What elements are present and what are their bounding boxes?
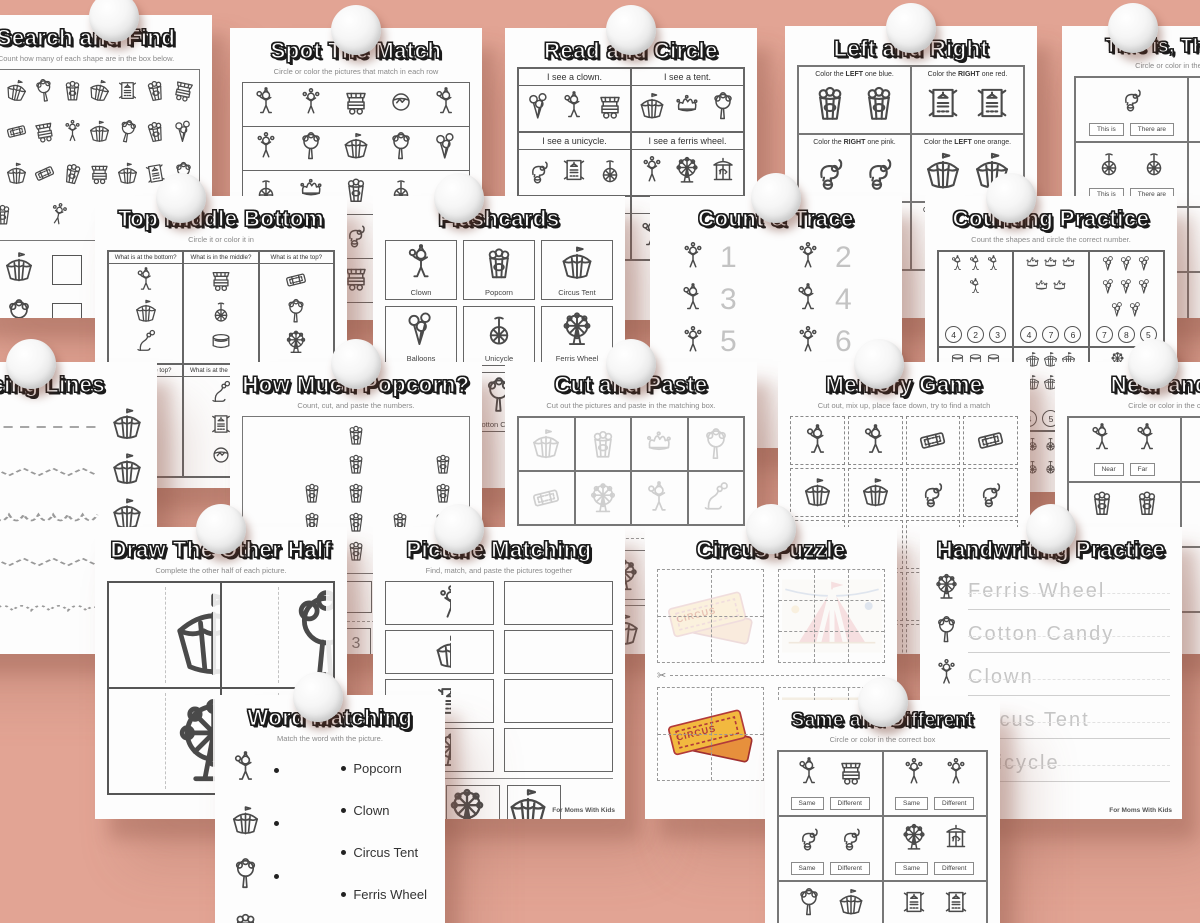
instruction: Color the LEFT one orange. [916, 139, 1019, 146]
icon [402, 335, 440, 352]
poster-icon [922, 82, 964, 124]
trace-line [0, 465, 101, 479]
page-title: Top Middle Bottom [107, 206, 335, 232]
clown-icon [229, 751, 262, 784]
popcorn-icon [141, 117, 170, 146]
puzzle-target-tickets: CIRCUS [657, 569, 764, 663]
option-same: Same [791, 862, 824, 875]
clown-icon [678, 283, 708, 313]
icon [229, 804, 262, 842]
paste-grid [517, 416, 745, 526]
icon [1033, 278, 1050, 300]
icon [116, 587, 214, 683]
popcorn-icon [431, 481, 455, 505]
icon [32, 78, 57, 108]
ferris-wheel-icon [283, 329, 309, 355]
tent-icon [115, 161, 140, 186]
poster-icon [115, 78, 140, 103]
icon [429, 633, 451, 671]
icon [87, 78, 112, 108]
icon [0, 78, 1, 108]
trace-number: 4 [835, 283, 852, 317]
number-options: 423 [941, 326, 1010, 343]
balloons-icon [1118, 255, 1135, 272]
icon [809, 150, 851, 197]
icon [133, 267, 159, 298]
cotton-candy-icon [283, 298, 309, 324]
flashcard: Unicycle [463, 306, 535, 366]
pictures [1072, 423, 1177, 458]
popcorn-icon [431, 452, 455, 476]
push-pin [858, 677, 908, 727]
push-pin [1128, 339, 1178, 389]
clown-icon [251, 87, 281, 117]
balloons-icon [524, 91, 554, 121]
clown-icon [559, 91, 589, 121]
icon [708, 155, 738, 190]
cotton-candy-icon [2, 298, 36, 318]
page-title: Memory Game [790, 372, 1018, 398]
options: This is There are [1192, 253, 1200, 266]
options: This is There are [1192, 123, 1200, 136]
icon [251, 87, 281, 122]
option-same: Same [895, 797, 928, 810]
options: Near Far [1185, 528, 1200, 541]
popcorn-icon [344, 481, 368, 505]
carousel-icon [941, 822, 971, 852]
tent-icon [801, 476, 834, 509]
push-pin [986, 173, 1036, 223]
flashcard: Clown [385, 240, 457, 300]
puzzle-gridline [779, 631, 884, 632]
popcorn-icon [141, 76, 170, 105]
icon [133, 329, 159, 360]
podium-icon [208, 329, 234, 355]
juggler-icon [793, 325, 823, 355]
option-near: Near [1094, 463, 1124, 476]
icon [115, 161, 140, 191]
word-label: Clown [353, 803, 389, 818]
sentence-cell: I see a clown. [518, 68, 631, 132]
distance-cell: Near Far [1181, 612, 1200, 654]
faded-cell [688, 471, 745, 525]
tent-icon [836, 887, 866, 917]
instructions: Complete the other half of each picture. [107, 566, 335, 575]
answer-box [52, 303, 82, 319]
icon [524, 155, 554, 190]
number-option: 6 [1064, 326, 1081, 343]
cotton-candy-icon [229, 857, 262, 890]
clown-icon [1087, 423, 1117, 453]
ferris-wheel-icon [932, 572, 961, 601]
match-dot [341, 766, 346, 771]
option-same: Same [895, 862, 928, 875]
option-different: Different [830, 862, 870, 875]
pictures [1185, 423, 1200, 458]
cart-icon [595, 91, 625, 121]
icon [558, 335, 596, 352]
juggler-icon [429, 584, 451, 622]
word-label: Popcorn [353, 761, 401, 776]
cotton-candy-icon [932, 615, 961, 644]
icon [115, 119, 140, 149]
number-option: 4 [945, 326, 962, 343]
half-picture-box [385, 630, 494, 674]
icon [208, 267, 234, 298]
elephant-icon [1117, 83, 1147, 113]
question: What is at the bottom? [109, 252, 182, 264]
faded-cell [631, 471, 688, 525]
unicycle-icon [1139, 148, 1169, 178]
jester-hat-icon [642, 427, 676, 461]
number-option: 8 [1118, 326, 1135, 343]
push-pin [293, 672, 343, 722]
options: This is There are [1192, 188, 1200, 201]
popcorn-icon [344, 423, 368, 447]
counting-cell: 476 [1013, 251, 1088, 347]
icon [794, 887, 824, 922]
juggler-icon [941, 757, 971, 787]
options: Near Far [1072, 463, 1177, 476]
faded-cell [575, 417, 632, 471]
cart-icon [168, 75, 198, 105]
popcorn-icon [1087, 488, 1117, 518]
icon [341, 131, 371, 166]
icon [1100, 278, 1117, 300]
faded-cell [518, 417, 575, 471]
icon [32, 161, 57, 191]
cotton-candy-icon [229, 587, 327, 683]
grammar-cell: This is There are [1188, 77, 1200, 142]
icon [115, 78, 140, 108]
icon [1042, 255, 1059, 277]
instruction: Color the RIGHT one pink. [803, 139, 906, 146]
trace-row [0, 404, 145, 449]
number-option: 7 [1096, 326, 1113, 343]
empty-box [504, 581, 613, 625]
icon [971, 82, 1013, 129]
icon [836, 822, 866, 857]
icon [251, 131, 281, 166]
icon [4, 119, 29, 149]
icon [1132, 488, 1162, 523]
icon [1136, 278, 1153, 300]
pictures [887, 887, 984, 922]
pictures [782, 887, 879, 922]
instruction: Color the RIGHT one red. [916, 71, 1019, 78]
clown-icon [642, 481, 676, 515]
trace-number: 5 [720, 325, 737, 359]
elephant-icon [916, 476, 949, 509]
puzzle-gridline [779, 600, 884, 601]
direction-cell: Color the RIGHT one pink. [798, 134, 911, 202]
word-label: Circus Tent [353, 845, 418, 860]
juggler-icon [296, 87, 326, 117]
juggler-icon [899, 757, 929, 787]
icon [1087, 423, 1117, 458]
page-title: Flashcards [385, 206, 613, 232]
cotton-candy-icon [296, 131, 326, 161]
icon [932, 572, 961, 610]
pictures [887, 822, 984, 857]
icon [171, 78, 196, 108]
icon [0, 202, 15, 232]
icon [1024, 255, 1041, 277]
icon [922, 150, 964, 197]
line-zigzag [0, 555, 101, 569]
icon [708, 91, 738, 126]
juggler-icon [678, 325, 708, 355]
juggler-icon [251, 131, 281, 161]
empty-box [504, 728, 613, 772]
icon [1100, 255, 1117, 277]
flashcard: Popcorn [463, 240, 535, 300]
ticket-icon [4, 119, 29, 144]
icon [899, 822, 929, 857]
pictures [887, 757, 984, 792]
instructions: Cut out, mix up, place face down, try to… [790, 401, 1018, 410]
flashcard: Balloons [385, 306, 457, 366]
compare-cell: Same Different [883, 881, 988, 923]
icon [4, 78, 29, 108]
icon [1139, 148, 1169, 183]
sentence: I see a ferris wheel. [632, 133, 743, 150]
trace-word: Ferris Wheel [968, 573, 1170, 610]
pictures [1192, 148, 1200, 183]
popcorn-stack [344, 423, 368, 568]
cotton-candy-icon [699, 427, 733, 461]
popcorn-icon [480, 244, 518, 282]
half-picture-cell [108, 582, 221, 688]
position-cell: What is at the top? [259, 251, 334, 364]
elephant-icon [974, 476, 1007, 509]
clown-icon [793, 283, 823, 313]
icon [794, 822, 824, 857]
icon [678, 241, 708, 276]
memory-card [906, 468, 961, 517]
clown-icon [794, 757, 824, 787]
cotton-candy-icon [708, 91, 738, 121]
distance-cell: Near Far [1068, 417, 1181, 482]
pictures [782, 757, 879, 792]
ticket-icon [30, 159, 59, 188]
icon [431, 452, 455, 481]
tent-icon [4, 161, 29, 186]
ferris-wheel-icon [899, 822, 929, 852]
popcorn-icon [344, 539, 368, 563]
icon [431, 87, 461, 122]
choices [519, 86, 630, 131]
icon [793, 283, 823, 318]
puzzle-gridline [814, 570, 815, 662]
memory-card [963, 416, 1018, 465]
pictures [1072, 488, 1177, 523]
instructions: Circle or color in the correct box [777, 735, 988, 744]
count-item: 3 [678, 279, 759, 321]
cart-icon [341, 87, 371, 117]
faded-cell [575, 471, 632, 525]
popcorn-icon [57, 158, 87, 188]
grammar-cell: This is There are [1188, 272, 1200, 318]
instructions: Circle or color in the correct box [1074, 61, 1200, 70]
icon [32, 119, 57, 149]
circus-tent-image [782, 573, 882, 659]
popcorn-icon [344, 510, 368, 534]
icon-pair [916, 82, 1019, 129]
icon [87, 161, 112, 191]
trace-line [0, 510, 101, 524]
elephant-icon [794, 822, 824, 852]
clown-icon [1132, 423, 1162, 453]
pictures [1192, 213, 1200, 248]
worksheet-word-matching: Word Matching Match the word with the pi… [215, 695, 445, 923]
trace-number: 2 [835, 241, 852, 275]
option-different: Different [934, 862, 974, 875]
icon [595, 155, 625, 190]
icon [208, 298, 234, 329]
instructions: Circle it or color it in [107, 235, 335, 244]
ferris-wheel-icon [672, 155, 702, 185]
trace-line [0, 555, 101, 569]
match-row [385, 581, 613, 625]
icon [0, 161, 1, 191]
balloons-icon [1136, 255, 1153, 272]
icon [1060, 255, 1077, 277]
icon [595, 91, 625, 126]
clown-icon [967, 278, 984, 295]
popcorn-icon [1132, 488, 1162, 518]
push-pin [331, 339, 381, 389]
line-zigzag [0, 465, 101, 479]
ticket-icon [529, 481, 563, 515]
options: Same Different [887, 862, 984, 875]
icon [0, 119, 1, 149]
icon [678, 325, 708, 360]
question: What is at the top? [260, 252, 333, 264]
tent-icon [229, 804, 262, 837]
jester-hat-icon [1024, 255, 1041, 272]
push-pin [434, 173, 484, 223]
choices [632, 150, 743, 195]
elephant-icon [836, 822, 866, 852]
empty-box [504, 679, 613, 723]
count-item: 1 [678, 237, 759, 279]
popcorn-icon [809, 82, 851, 124]
count-item: 4 [793, 279, 874, 321]
popcorn-icon [229, 910, 262, 923]
icon [1132, 423, 1162, 458]
icon [1109, 301, 1126, 323]
number-option: 2 [967, 326, 984, 343]
push-pin [746, 504, 796, 554]
unicycle-icon [480, 310, 518, 348]
tent-icon [87, 119, 112, 144]
push-pin [331, 5, 381, 55]
options: Same Different [887, 797, 984, 810]
options: Same Different [782, 862, 879, 875]
compare-cell: Same Different [883, 816, 988, 881]
count-item: 5 [678, 321, 759, 363]
compare-cell: Same Different [883, 751, 988, 816]
options: This is There are [1079, 123, 1184, 136]
memory-card [790, 468, 845, 517]
elephant-icon [809, 150, 851, 192]
match-row [243, 83, 469, 126]
icon [133, 298, 159, 329]
compare-cell: Same Different [778, 751, 883, 816]
push-pin [606, 5, 656, 55]
icon [932, 658, 961, 696]
flashcard: Circus Tent [541, 240, 613, 300]
icon [985, 255, 1002, 277]
sentence-cell: I see a tent. [631, 68, 744, 132]
icon [344, 481, 368, 510]
memory-card [790, 416, 845, 465]
clown-icon [985, 255, 1002, 272]
grammar-cell: This is There are [1188, 142, 1200, 207]
puzzle-pieces-tickets: CIRCUS [657, 687, 764, 781]
cart-icon [30, 117, 59, 146]
icon [899, 887, 929, 922]
popcorn-icon [60, 78, 85, 103]
juggler-icon [43, 200, 73, 230]
clown-icon [967, 255, 984, 272]
icon [229, 910, 262, 923]
count-item: 2 [793, 237, 874, 279]
ticket-icon [283, 267, 309, 293]
instructions: Count how many of each shape are in the … [0, 54, 200, 63]
poster-icon [899, 887, 929, 917]
shape-group [941, 255, 1010, 300]
pictures [1185, 553, 1200, 588]
clown-icon [949, 255, 966, 272]
pictures [782, 822, 879, 857]
balloons-icon [402, 310, 440, 348]
seal-icon [0, 119, 1, 144]
icon [524, 91, 554, 126]
distance-cell: Near Far [1181, 482, 1200, 547]
distance-cell: Near Far [1181, 417, 1200, 482]
tent-icon [2, 250, 36, 284]
icon-pair [803, 82, 906, 129]
icon [386, 131, 416, 166]
tent-icon [507, 786, 560, 819]
memory-card [906, 416, 961, 465]
icon [967, 255, 984, 277]
tent-icon [922, 150, 964, 192]
icon [941, 887, 971, 922]
options: Near Far [1185, 593, 1200, 606]
icon [559, 91, 589, 126]
push-pin [854, 339, 904, 389]
icon [109, 451, 145, 492]
match-dot [341, 850, 346, 855]
option-different: Different [934, 797, 974, 810]
instructions: Find, match, and paste the pictures toge… [385, 566, 613, 575]
match-dot [274, 768, 279, 773]
word-column: Popcorn Clown Circus Tent Ferris Wheel [341, 751, 427, 923]
memory-card [848, 468, 903, 517]
distance-cell: Near Far [1181, 547, 1200, 612]
position-cell: What is in the middle? [183, 251, 258, 364]
icon-stack [184, 264, 257, 363]
juggler-icon [60, 119, 85, 144]
balloons-icon [1100, 255, 1117, 272]
position-cell: What is at the bottom? [108, 251, 183, 364]
icon [1087, 488, 1117, 523]
flashcard-label: Circus Tent [544, 288, 610, 297]
icon [283, 267, 309, 298]
